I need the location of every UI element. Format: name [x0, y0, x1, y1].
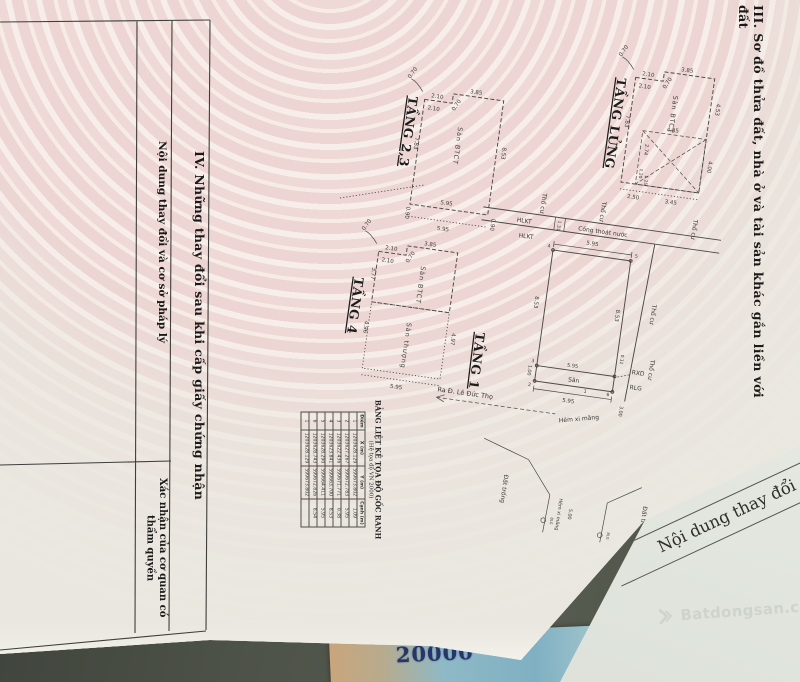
- svg-text:0.70: 0.70: [405, 250, 417, 264]
- svg-text:0.90: 0.90: [488, 218, 496, 231]
- watermark-text: Batdongsan.com: [680, 596, 800, 624]
- svg-text:Ra Đ. Lê Đức Thọ: Ra Đ. Lê Đức Thọ: [437, 385, 494, 401]
- svg-text:8.53: 8.53: [613, 309, 621, 322]
- svg-text:HLKT: HLKT: [516, 217, 532, 226]
- listing-watermark: Batdongsan.com: [655, 594, 800, 628]
- photo-scene: 20000 Nội dung thay đổi Batdongsan.com I…: [0, 0, 800, 682]
- svg-text:1: 1: [583, 389, 587, 395]
- coord-cell: 1203628.743: [309, 430, 317, 466]
- coord-cell: 5.95: [317, 499, 325, 528]
- svg-text:Thổ cư: Thổ cư: [647, 303, 657, 326]
- coord-cell: 8.53: [325, 499, 333, 528]
- coord-cell: 1203623.841: [325, 430, 333, 466]
- svg-text:Thổ cư: Thổ cư: [597, 200, 607, 223]
- coord-cell: 599673.802: [349, 466, 357, 499]
- svg-text:Sàn BTCT: Sàn BTCT: [451, 127, 464, 166]
- svg-text:5.95: 5.95: [436, 226, 449, 234]
- section3-heading: III. Sơ đồ thửa đất, nhà ở và tài sản kh…: [740, 5, 766, 425]
- svg-text:1.25: 1.25: [642, 175, 649, 186]
- coord-cell: 4: [325, 412, 333, 430]
- svg-text:5.95: 5.95: [440, 200, 453, 208]
- floor-plan-tang-lung: TẦNG LỬNG 0.70 2.10 3.85 2.10 0.70 7.83 …: [598, 43, 727, 211]
- coord-cell: 599663.700: [325, 466, 333, 499]
- svg-text:BLG: BLG: [605, 532, 610, 540]
- svg-text:1.31: 1.31: [555, 220, 562, 231]
- svg-text:1.20: 1.20: [637, 168, 644, 179]
- svg-text:7.83: 7.83: [623, 115, 631, 128]
- coord-cell: 2: [341, 412, 349, 430]
- coord-cell: 3: [333, 412, 341, 430]
- leader-line: [340, 185, 424, 198]
- svg-text:5.95: 5.95: [562, 398, 575, 406]
- svg-text:0.70: 0.70: [361, 218, 373, 232]
- svg-text:2.50: 2.50: [627, 194, 640, 202]
- svg-text:5.00: 5.00: [566, 508, 573, 519]
- alley-sketch: Đất trống Hẻm xi măng 5.00 BLG BLG Đất t…: [472, 438, 654, 548]
- coord-row: 51203628.290599664.4115.95: [317, 412, 325, 527]
- coordinate-table-title: BẢNG LIỆT KÊ TỌA ĐỘ GỐC RANH: [374, 395, 383, 545]
- coord-cell: 1203628.129: [301, 430, 309, 466]
- coord-cell: 599672.826: [309, 466, 317, 499]
- coord-table-body: 11203628.129599673.8021.0921203627.26759…: [301, 412, 357, 527]
- coord-row: 11203628.129599673.802: [301, 412, 309, 527]
- svg-text:4.00: 4.00: [705, 161, 713, 174]
- coord-cell: 599671.771: [333, 466, 341, 499]
- coord-header-cell: Điểm: [357, 412, 365, 430]
- section4-col-confirm: Xác nhận của cơ quan có thẩm quyền: [132, 466, 168, 630]
- coord-header-row: ĐiểmX (m)Y (m)Cạnh (m): [357, 412, 365, 527]
- section4-col-content: Nội dung thay đổi và cơ sở pháp lý: [140, 26, 168, 458]
- svg-text:Hẻm xi măng: Hẻm xi măng: [559, 414, 600, 424]
- svg-text:8.53: 8.53: [532, 296, 540, 309]
- svg-text:RLG: RLG: [629, 384, 642, 393]
- svg-text:7.83: 7.83: [412, 137, 420, 150]
- coord-row: 21203627.267599672.7835.95: [341, 412, 349, 527]
- coord-row: 61203628.743599672.8268.54: [309, 412, 317, 527]
- svg-text:2.10: 2.10: [385, 245, 398, 253]
- tang1-label: TẦNG 1: [466, 332, 490, 391]
- coord-cell: 5: [317, 412, 325, 430]
- svg-text:4.97: 4.97: [448, 333, 456, 346]
- svg-text:2.10: 2.10: [381, 257, 394, 265]
- svg-text:3.85: 3.85: [681, 67, 694, 75]
- coord-cell: 1: [349, 412, 357, 430]
- svg-text:4: 4: [547, 243, 551, 249]
- site-plan-tang-1: HLKT 1.31 Cống thoát nước HLKT Thổ cư Th…: [435, 181, 724, 443]
- svg-text:2.10: 2.10: [638, 83, 651, 91]
- svg-text:5.95: 5.95: [390, 384, 403, 392]
- coord-header-cell: X (m): [357, 430, 365, 466]
- svg-text:Sân: Sân: [568, 376, 580, 385]
- coord-cell: 8.54: [309, 499, 317, 528]
- svg-text:2: 2: [528, 382, 532, 388]
- svg-text:0.70: 0.70: [451, 98, 463, 112]
- section4-heading: IV. Những thay đổi sau khi cấp giấy chứn…: [175, 26, 207, 626]
- svg-text:Sàn BTCT: Sàn BTCT: [414, 266, 427, 305]
- coord-cell: 599673.802: [301, 466, 309, 499]
- svg-text:3.00: 3.00: [616, 406, 623, 417]
- coord-cell: 0.38: [333, 499, 341, 528]
- svg-text:0.90: 0.90: [403, 206, 411, 219]
- svg-text:Thổ cư: Thổ cư: [538, 192, 548, 215]
- coord-header-cell: Y (m): [357, 466, 365, 499]
- svg-text:BLG: BLG: [549, 517, 554, 525]
- floor-plan-tang-4: TẦNG 4 0.70 2.10 3.85 2.10 0.70 3.77 Sàn…: [337, 217, 470, 398]
- svg-text:3.85: 3.85: [424, 241, 437, 249]
- svg-text:Thổ cư: Thổ cư: [646, 358, 656, 381]
- coord-cell: 1: [301, 412, 309, 430]
- svg-text:2.10: 2.10: [427, 105, 440, 113]
- svg-text:Sàn BTCT: Sàn BTCT: [666, 95, 679, 134]
- svg-text:6: 6: [606, 392, 610, 398]
- floor-plan-tang-2-3: TẦNG 2,3 0.70 2.10 3.85 2.10 0.70 7.83 8…: [386, 65, 516, 240]
- svg-text:5.95: 5.95: [567, 363, 579, 370]
- coord-row: 31203622.436599671.7710.38: [333, 412, 341, 527]
- svg-text:RXD: RXD: [631, 369, 645, 378]
- svg-text:3.45: 3.45: [664, 199, 677, 207]
- coord-row: 11203628.129599673.8021.09: [349, 412, 357, 527]
- chevron-logo-icon: [655, 605, 676, 628]
- svg-text:TẦNG LỬNG: TẦNG LỬNG: [602, 77, 632, 170]
- svg-text:2.10: 2.10: [642, 71, 655, 79]
- svg-text:Sàn thượng: Sàn thượng: [399, 322, 413, 369]
- svg-text:TẦNG 2,3: TẦNG 2,3: [396, 95, 423, 168]
- svg-text:4.96: 4.96: [361, 320, 369, 333]
- svg-text:3.85: 3.85: [470, 89, 483, 97]
- coord-cell: 5.95: [341, 499, 349, 528]
- svg-text:Hẻm xi măng: Hẻm xi măng: [553, 498, 564, 531]
- svg-text:0.70: 0.70: [618, 44, 630, 58]
- svg-text:8.53: 8.53: [499, 147, 507, 160]
- svg-text:5.95: 5.95: [586, 241, 599, 249]
- coord-header-cell: Cạnh (m): [357, 499, 365, 528]
- coord-cell: 1203627.267: [341, 430, 349, 466]
- svg-text:3.77: 3.77: [369, 267, 377, 280]
- svg-text:TẦNG 4: TẦNG 4: [344, 276, 369, 335]
- coord-cell: 599672.783: [341, 466, 349, 499]
- coord-row: 41203623.841599663.7008.53: [325, 412, 333, 527]
- svg-text:Cống thoát nước: Cống thoát nước: [578, 225, 628, 239]
- coord-cell: 599664.411: [317, 466, 325, 499]
- svg-text:4.53: 4.53: [713, 103, 721, 116]
- svg-text:Thổ cư: Thổ cư: [689, 218, 699, 241]
- coord-cell: 6: [309, 412, 317, 430]
- coord-cell: 1203628.129: [349, 430, 357, 466]
- svg-text:1.00: 1.00: [525, 364, 532, 375]
- svg-text:0.70: 0.70: [407, 66, 419, 80]
- coord-cell: 1.09: [349, 499, 357, 528]
- svg-text:Đất trống: Đất trống: [498, 474, 509, 504]
- svg-text:3: 3: [531, 358, 535, 364]
- coord-cell: 1203628.290: [317, 430, 325, 466]
- svg-text:2.10: 2.10: [431, 93, 444, 101]
- svg-text:HLKT: HLKT: [518, 232, 534, 241]
- coord-cell: [301, 499, 309, 528]
- svg-text:2.74: 2.74: [642, 144, 649, 156]
- coordinate-table: BẢNG LIỆT KÊ TỌA ĐỘ GỐC RANH (Hệ tọa độ …: [278, 395, 383, 545]
- svg-text:4.85: 4.85: [666, 127, 679, 135]
- coord-cell: 1203622.436: [333, 430, 341, 466]
- svg-text:0.11: 0.11: [618, 354, 625, 365]
- svg-text:5: 5: [634, 253, 638, 259]
- svg-text:0.70: 0.70: [662, 76, 674, 90]
